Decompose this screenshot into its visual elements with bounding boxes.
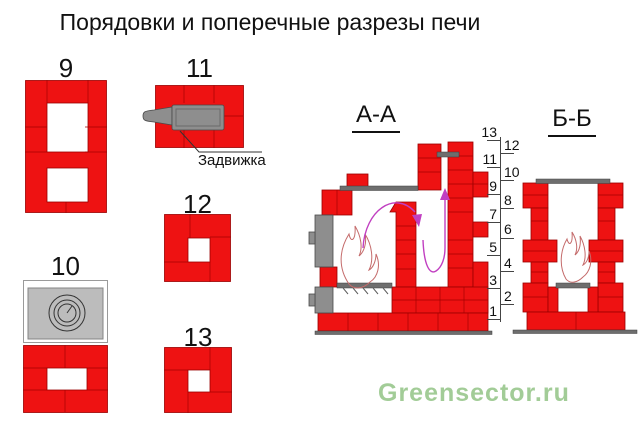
course-10-label: 10 <box>23 253 108 279</box>
row-scale-1: 1 <box>475 304 497 318</box>
course-10-opening <box>47 368 87 390</box>
firebox-door <box>309 215 333 267</box>
row-scale-7: 7 <box>475 207 497 221</box>
grate <box>556 283 590 288</box>
flow-arrow-up-chimney <box>423 188 450 272</box>
row-scale-axis <box>500 137 501 322</box>
section-bb-title: Б-Б <box>546 107 598 131</box>
row-scale-11: 11 <box>475 152 497 166</box>
stove-diagram-page: Порядовки и поперечные разрезы печи 9 11… <box>0 0 640 427</box>
top-cover-bar <box>536 179 610 184</box>
course-9-diagram <box>25 80 107 214</box>
course-13-diagram <box>164 347 232 413</box>
flame-drawing <box>341 226 378 288</box>
row-scale-3: 3 <box>475 273 497 287</box>
course-10-diagram <box>23 280 108 413</box>
row-scale-5: 5 <box>475 240 497 254</box>
course-9-lower-opening <box>47 168 88 202</box>
page-title: Порядовки и поперечные разрезы печи <box>0 9 540 36</box>
row-scale-9: 9 <box>475 179 497 193</box>
course-9-flue-opening <box>47 103 88 152</box>
firebox-lintel <box>340 186 418 191</box>
row-scale-12: 12 <box>504 138 526 152</box>
section-aa-title: А-А <box>348 103 404 127</box>
foundation-line <box>513 330 637 334</box>
chimney-damper <box>437 152 459 157</box>
ash-door <box>309 287 333 313</box>
chimney-left-wall <box>418 144 441 190</box>
section-bb-diagram <box>510 175 640 338</box>
course-9-label: 9 <box>25 55 107 81</box>
middle-baffle-wall <box>390 202 416 287</box>
row-scale-13: 13 <box>475 125 497 139</box>
grate <box>337 283 392 294</box>
course-13-flue-opening <box>188 370 210 392</box>
watermark: Greensector.ru <box>378 379 570 408</box>
course-12-diagram <box>164 214 231 282</box>
damper-annotation: Задвижка <box>198 152 266 169</box>
chimney-right-wall <box>448 142 473 287</box>
cooking-plate <box>28 288 103 339</box>
flame-drawing <box>561 232 591 282</box>
course-11-label: 11 <box>155 55 244 81</box>
section-aa-diagram <box>305 138 495 338</box>
course-12-flue-opening <box>188 238 210 262</box>
foundation-line <box>315 331 492 335</box>
base-course <box>318 313 488 331</box>
